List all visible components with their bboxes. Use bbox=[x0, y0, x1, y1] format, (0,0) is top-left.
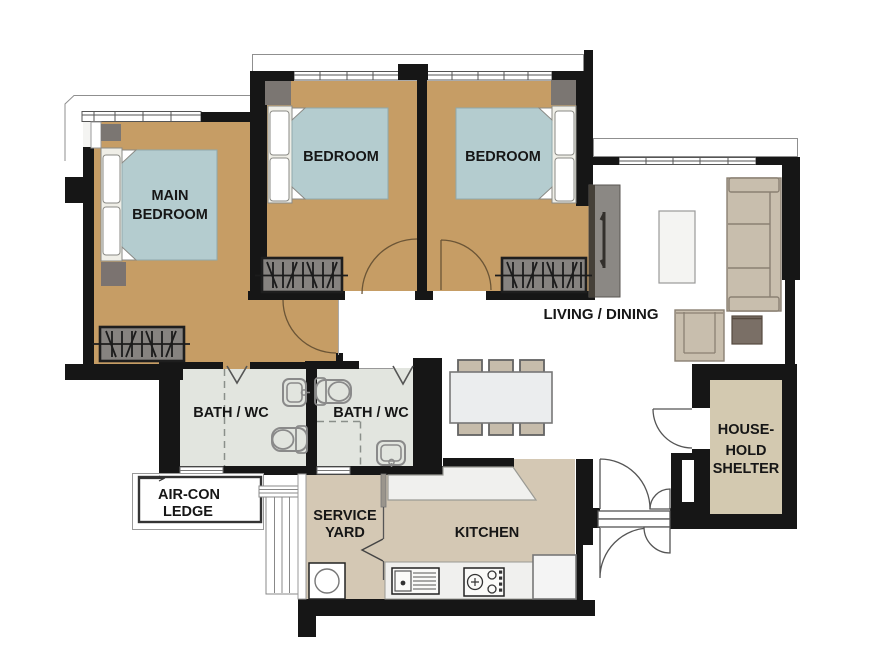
svg-text:MAIN: MAIN bbox=[151, 188, 188, 204]
svg-text:BATH / WC: BATH / WC bbox=[333, 405, 409, 421]
svg-text:BEDROOM: BEDROOM bbox=[303, 149, 379, 165]
svg-text:AIR-CON: AIR-CON bbox=[158, 487, 220, 503]
svg-text:SHELTER: SHELTER bbox=[713, 461, 780, 477]
svg-text:KITCHEN: KITCHEN bbox=[455, 525, 519, 541]
svg-text:BEDROOM: BEDROOM bbox=[132, 207, 208, 223]
svg-text:YARD: YARD bbox=[325, 525, 365, 541]
svg-text:LIVING / DINING: LIVING / DINING bbox=[543, 306, 658, 323]
svg-text:BEDROOM: BEDROOM bbox=[465, 149, 541, 165]
svg-text:HOLD: HOLD bbox=[725, 443, 766, 459]
svg-text:SERVICE: SERVICE bbox=[313, 508, 377, 524]
svg-text:BATH / WC: BATH / WC bbox=[193, 405, 269, 421]
svg-text:HOUSE-: HOUSE- bbox=[718, 422, 775, 438]
svg-text:LEDGE: LEDGE bbox=[163, 504, 213, 520]
